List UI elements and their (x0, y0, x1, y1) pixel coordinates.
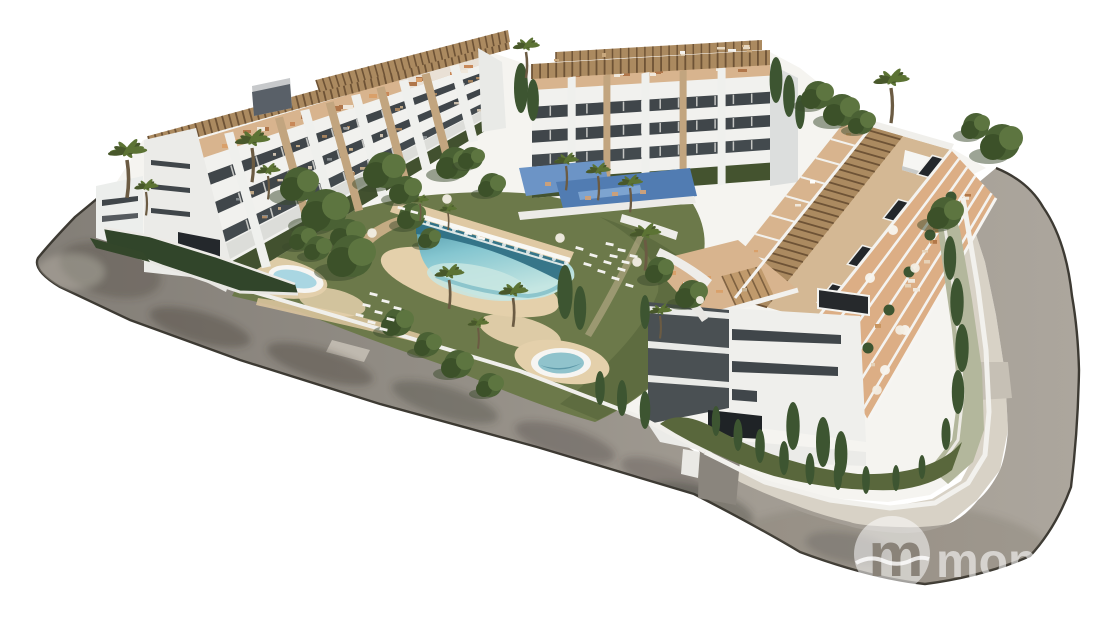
svg-text:m: m (868, 521, 923, 590)
svg-text:mon: mon (936, 535, 1037, 588)
